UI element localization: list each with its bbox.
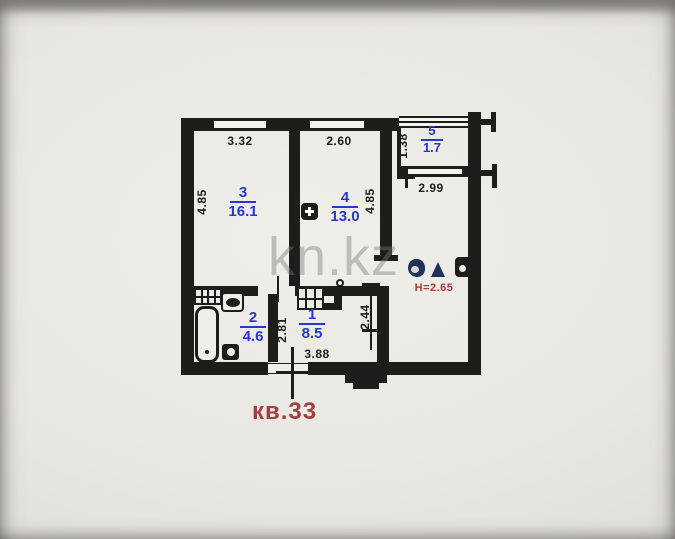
wall-left <box>181 118 194 375</box>
room3-area: 16.1 <box>216 203 270 220</box>
room2-number: 2 <box>240 309 266 328</box>
balcony-door-window <box>405 168 463 175</box>
entrance-cross-h <box>276 371 310 374</box>
room3-number: 3 <box>230 184 256 203</box>
room4-number: 4 <box>332 189 358 208</box>
wall-bottom-right <box>308 362 481 375</box>
window-room3 <box>213 120 267 129</box>
room1-number: 1 <box>299 306 325 325</box>
photo-top-shadow <box>0 0 675 15</box>
room-label-2: 2 4.6 <box>226 309 280 346</box>
dim-room4-width: 2.60 <box>311 134 367 148</box>
wall-hall-rightroom <box>377 286 389 362</box>
dim-room3-width: 3.32 <box>213 134 267 148</box>
room5-area: 1.7 <box>408 141 456 156</box>
apartment-number: кв.33 <box>252 398 317 426</box>
bathtub-icon <box>195 306 219 363</box>
dim-hall-height: 2.44 <box>358 297 372 337</box>
wall-bottom-left <box>181 362 268 375</box>
toilet-icon <box>222 344 239 360</box>
slab-tick-mid-v <box>492 164 497 188</box>
wall-right <box>468 112 481 375</box>
room-label-4: 4 13.0 <box>318 189 372 226</box>
room5-number: 5 <box>421 124 442 141</box>
entrance-threshold-2 <box>353 383 379 389</box>
kn-kz-watermark: kn.kz <box>268 226 448 288</box>
slab-tick-top-v <box>491 112 496 132</box>
entrance-threshold-1 <box>345 375 387 383</box>
room4-area: 13.0 <box>318 208 372 225</box>
electrical-panel-icon <box>301 203 318 220</box>
dim-balcony-width: 2.99 <box>404 181 458 195</box>
room-label-5: 5 1.7 <box>408 124 456 156</box>
floor-plan-photo: 3.32 2.60 4.85 4.85 1.38 2.99 2.81 2.44 … <box>0 0 675 539</box>
dim-left-height: 4.85 <box>195 182 209 222</box>
bath-vent-grille-icon <box>194 288 222 305</box>
vent-shaft-icon <box>455 257 473 277</box>
room2-area: 4.6 <box>226 328 280 345</box>
room-label-3: 3 16.1 <box>216 184 270 221</box>
room1-area: 8.5 <box>285 325 339 342</box>
dim-tick-299-h <box>397 176 415 179</box>
dim-hall-width: 3.88 <box>290 347 344 361</box>
window-room4 <box>309 120 365 129</box>
room-label-1: 1 8.5 <box>285 306 339 343</box>
